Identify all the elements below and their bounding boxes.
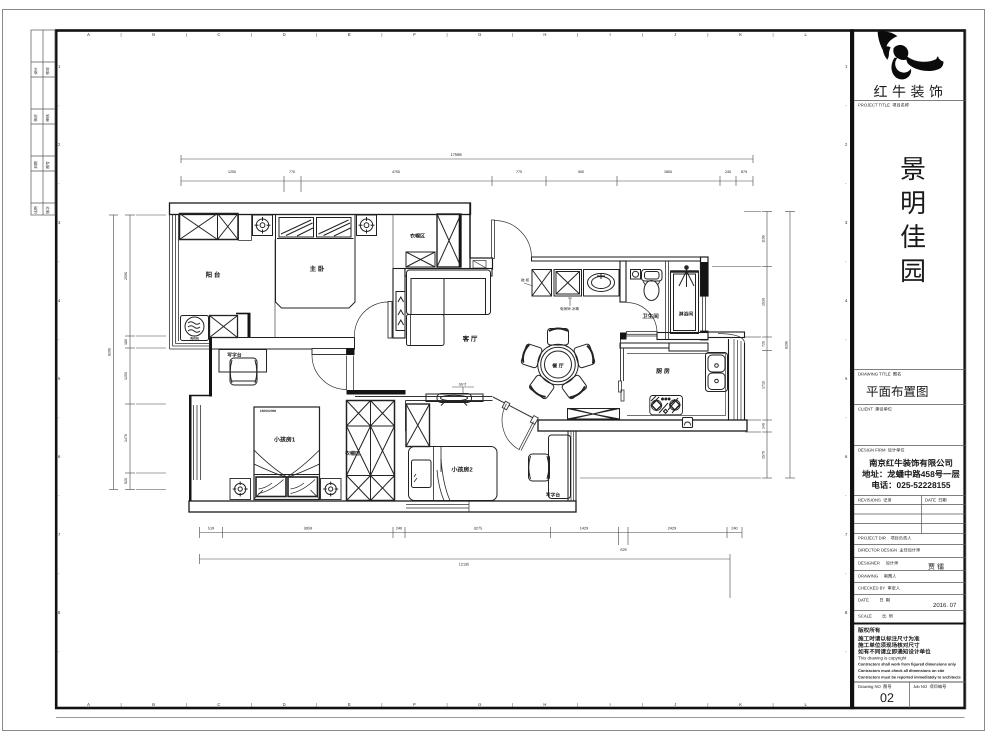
svg-text:This drawing is copyright: This drawing is copyright [858, 656, 907, 661]
svg-text:厨 房: 厨 房 [656, 367, 670, 375]
svg-text:J: J [674, 702, 676, 707]
svg-text:8295: 8295 [785, 341, 789, 349]
svg-text:卫生间: 卫生间 [642, 313, 659, 320]
svg-text:4755: 4755 [392, 170, 400, 174]
svg-text:DESIGNER 设计师: DESIGNER 设计师 [858, 561, 898, 566]
svg-text:1715: 1715 [762, 381, 766, 389]
svg-text:Drawing NO 图号: Drawing NO 图号 [858, 684, 892, 689]
svg-text:1570: 1570 [762, 451, 766, 459]
svg-text:电饭煲.冰箱: 电饭煲.冰箱 [560, 306, 579, 311]
svg-text:905: 905 [578, 170, 584, 174]
svg-text:|: | [381, 32, 382, 37]
svg-text:180: 180 [124, 339, 128, 345]
svg-text:K: K [739, 702, 742, 707]
svg-text:写字台: 写字台 [546, 492, 561, 499]
svg-text:H: H [543, 702, 546, 707]
svg-text:F: F [413, 32, 416, 37]
svg-text:1429: 1429 [580, 527, 588, 531]
svg-text:|: | [707, 702, 708, 707]
svg-text:770: 770 [289, 170, 295, 174]
svg-text:|: | [577, 32, 578, 37]
svg-text:REVISIONS 记录: REVISIONS 记录 [858, 498, 892, 503]
svg-text:修改: 修改 [45, 67, 50, 75]
svg-text:写字台: 写字台 [227, 352, 242, 359]
svg-text:|: | [121, 32, 122, 37]
svg-text:SCALE 比 例: SCALE 比 例 [858, 614, 893, 619]
svg-text:E: E [348, 702, 351, 707]
svg-text:F: F [413, 702, 416, 707]
svg-text:I: I [610, 702, 611, 707]
svg-text:D: D [283, 702, 286, 707]
svg-text:|: | [447, 32, 448, 37]
svg-text:8295: 8295 [108, 348, 112, 356]
svg-text:PROJECT DIR 项目负责人: PROJECT DIR 项目负责人 [858, 536, 912, 541]
svg-text:02: 02 [880, 691, 894, 705]
svg-text:如有不同请立即通知设计单位: 如有不同请立即通知设计单位 [858, 649, 931, 656]
svg-text:CLIENT 建设单位: CLIENT 建设单位 [858, 407, 892, 412]
svg-text:1850: 1850 [664, 170, 672, 174]
svg-text:鞋 柜: 鞋 柜 [521, 278, 530, 283]
svg-text:衣帽区: 衣帽区 [345, 450, 360, 457]
svg-text:|: | [773, 702, 774, 707]
svg-text:|: | [642, 32, 643, 37]
svg-text:|: | [447, 702, 448, 707]
svg-text:施工单位须现场核对尺寸: 施工单位须现场核对尺寸 [858, 642, 920, 649]
svg-text:图号: 图号 [45, 161, 50, 169]
svg-text:J: J [674, 32, 676, 37]
svg-text:CHECKED BY 审定人: CHECKED BY 审定人 [858, 586, 901, 591]
svg-text:DATE 日期: DATE 日期 [925, 498, 947, 503]
svg-text:DIRECTOR DESIGN 主任设计师: DIRECTOR DESIGN 主任设计师 [858, 548, 920, 553]
svg-text:|: | [121, 702, 122, 707]
svg-text:Job NO 项目编号: Job NO 项目编号 [913, 684, 946, 689]
svg-text:2016. 07: 2016. 07 [933, 602, 957, 609]
svg-text:519: 519 [208, 527, 214, 531]
svg-text:E: E [348, 32, 351, 37]
svg-text:DRAWING 制图人: DRAWING 制图人 [858, 574, 897, 579]
svg-text:Contractors must check all dim: Contractors must check all dimensions on… [858, 668, 945, 673]
svg-text:小孩房2: 小孩房2 [450, 466, 473, 474]
svg-text:|: | [186, 32, 187, 37]
svg-text:|: | [251, 32, 252, 37]
svg-text:C: C [217, 702, 220, 707]
svg-text:|: | [577, 702, 578, 707]
svg-text:|: | [642, 702, 643, 707]
svg-text:比例: 比例 [33, 206, 38, 214]
svg-text:平面布置图: 平面布置图 [866, 385, 929, 399]
svg-text:B: B [152, 32, 155, 37]
svg-text:920: 920 [124, 478, 128, 484]
svg-text:|: | [707, 32, 708, 37]
svg-text:版权所有: 版权所有 [858, 627, 881, 634]
svg-text:|: | [512, 32, 513, 37]
svg-text:H: H [543, 32, 546, 37]
svg-text:879: 879 [741, 170, 747, 174]
svg-text:主 卧: 主 卧 [310, 265, 325, 273]
svg-text:Contractors must be reported i: Contractors must be reported immediately… [858, 675, 961, 680]
svg-text:客 厅: 客 厅 [463, 335, 478, 343]
svg-text:1530: 1530 [762, 298, 766, 306]
svg-text:A: A [87, 32, 90, 37]
svg-text:|: | [773, 32, 774, 37]
svg-text:|: | [381, 702, 382, 707]
svg-text:红牛装饰: 红牛装饰 [874, 84, 948, 100]
svg-text:I: I [610, 32, 611, 37]
svg-text:DATE 日 期: DATE 日 期 [858, 598, 890, 603]
svg-text:1195: 1195 [762, 235, 766, 243]
svg-text:洗衣机: 洗衣机 [190, 337, 199, 341]
svg-text:3059: 3059 [304, 527, 312, 531]
svg-text:629: 629 [620, 548, 626, 552]
svg-text:南京红牛装饰有限公司: 南京红牛装饰有限公司 [869, 458, 953, 468]
svg-text:DESIGN FIRM 设计单位: DESIGN FIRM 设计单位 [858, 448, 905, 453]
svg-text:1250: 1250 [124, 372, 128, 380]
svg-text:K: K [739, 32, 742, 37]
svg-text:园: 园 [900, 256, 926, 286]
svg-text:|: | [316, 32, 317, 37]
svg-text:G: G [478, 702, 481, 707]
svg-text:1500X2000: 1500X2000 [260, 409, 277, 413]
svg-text:G: G [478, 32, 481, 37]
svg-text:|: | [512, 702, 513, 707]
svg-text:日期: 日期 [33, 161, 38, 169]
svg-text:DRAWING TITLE 图名: DRAWING TITLE 图名 [858, 372, 901, 377]
svg-text:核对: 核对 [33, 114, 38, 122]
svg-text:240: 240 [731, 527, 737, 531]
svg-text:审核: 审核 [45, 114, 50, 122]
svg-text:小孩房1: 小孩房1 [273, 436, 296, 444]
svg-text:餐 厅: 餐 厅 [551, 363, 563, 370]
svg-text:1255: 1255 [228, 170, 236, 174]
svg-text:D: D [283, 32, 286, 37]
svg-text:|: | [316, 702, 317, 707]
svg-text:B: B [152, 702, 155, 707]
svg-text:C: C [217, 32, 220, 37]
svg-text:2429: 2429 [668, 527, 676, 531]
svg-text:景: 景 [900, 154, 926, 184]
svg-text:淋浴间: 淋浴间 [679, 311, 694, 318]
svg-text:140: 140 [762, 423, 766, 429]
svg-text:地址：龙蟠中路458号一层: 地址：龙蟠中路458号一层 [862, 469, 960, 479]
svg-text:12135: 12135 [459, 563, 470, 567]
svg-text:A: A [87, 702, 90, 707]
svg-text:电话：025-52228155: 电话：025-52228155 [871, 480, 950, 490]
svg-text:1470: 1470 [124, 434, 128, 442]
svg-text:明: 明 [900, 188, 926, 218]
svg-text:PROJECT TITLE 项目名称: PROJECT TITLE 项目名称 [858, 103, 910, 108]
svg-text:2595: 2595 [124, 272, 128, 280]
svg-text:施工时请以标注尺寸为准: 施工时请以标注尺寸为准 [858, 636, 920, 643]
svg-text:240: 240 [396, 527, 402, 531]
svg-text:贾 镭: 贾 镭 [928, 563, 944, 571]
svg-text:阳 台: 阳 台 [206, 271, 221, 279]
svg-text:衣帽区: 衣帽区 [410, 233, 425, 240]
svg-text:3275: 3275 [474, 527, 482, 531]
svg-text:Contractors shall work from fi: Contractors shall work from figured dime… [858, 662, 957, 667]
svg-text:版次: 版次 [45, 206, 50, 214]
svg-text:佳: 佳 [900, 222, 926, 252]
svg-text:240: 240 [725, 170, 731, 174]
svg-text:55寸: 55寸 [459, 382, 467, 387]
svg-text:|: | [186, 702, 187, 707]
svg-text:|: | [251, 702, 252, 707]
svg-text:725: 725 [762, 341, 766, 347]
svg-text:775: 775 [516, 170, 522, 174]
svg-text:设计: 设计 [33, 67, 38, 75]
svg-text:17598: 17598 [450, 152, 462, 157]
